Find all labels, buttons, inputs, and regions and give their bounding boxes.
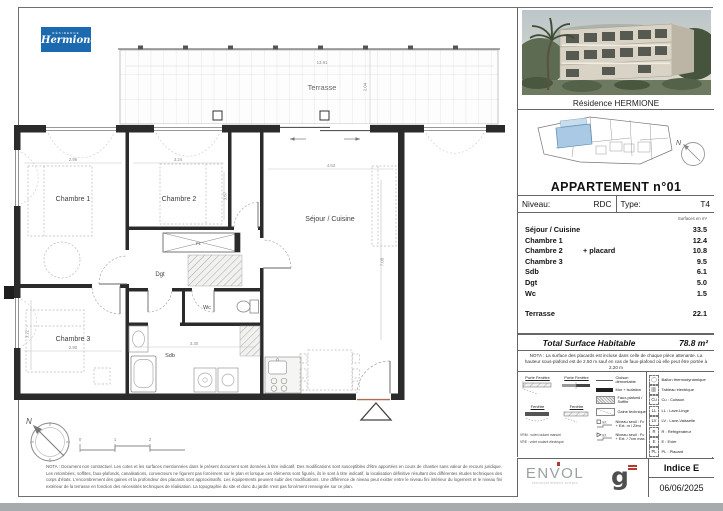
architect-logo-mark [628,465,637,467]
footer-logos: ENVOL renouvellement urbain g [517,458,648,497]
dim-ch3-w: 2.90 [69,345,78,350]
dim-sejour-w: 4.53 [327,163,336,168]
seuil-marker-icon: réf. [596,432,613,442]
niveau-label: Niveau: [522,199,550,209]
legend-linetypes: Cloison démontable Mur + isolation Faux-… [596,376,646,446]
north-label: N [26,417,32,426]
keyplan-section: N APPARTEMENT n°01 [518,112,714,196]
gaine-swatch [596,408,615,416]
footer-disclaimer: NOTA : Document non contractuel. Les cot… [46,464,502,491]
table-row: Chambre 2+ placard10.8 [525,246,707,257]
dim-ch2-d: 3.67 [223,191,228,200]
legend-vrm-note: VRM : volet roulant manuel [520,433,594,437]
envol-logo: ENVOL renouvellement urbain [518,459,592,497]
svg-text:réf.: réf. [602,434,607,438]
keyplan-north-icon: N [676,140,705,166]
architect-logo-letter: g [592,459,648,495]
unit-highlight [556,124,592,148]
table-row: Dgt5.0 [525,278,707,289]
page-edge-shadow [0,503,723,511]
table-row: Chambre 39.5 [525,257,707,268]
terrace-post [213,111,222,120]
north-arrow: N [26,417,70,462]
legend-gaine: Gaine technique [618,410,647,414]
mur-swatch [596,388,613,392]
label-wc: Wc [203,305,211,311]
placard [163,233,240,252]
residence-name: Hermione [41,35,91,46]
total-label: Total Surface Habitable [518,338,660,348]
surfaces-unit-note: Surfaces en m² [525,216,707,221]
architect-logo: g [592,459,648,497]
cuisson-icon: Cu [649,395,659,405]
legend-item: RR : Réfrigérateur [649,426,715,436]
label-dgt: Dgt [155,272,165,278]
legend-cloison: Cloison démontable [616,376,647,385]
soffit-hatch [188,255,242,286]
entrance-door [356,361,391,401]
evier-icon: E [649,437,659,447]
label-chambre2: Chambre 2 [162,196,197,203]
dim-sdb-w: 3.30 [190,341,199,346]
legend-faux-plafond: Faux-plafond / Soffite [618,396,647,405]
kitchen-fixtures [265,357,301,393]
label-chambre3: Chambre 3 [56,336,91,343]
table-row: Séjour / Cuisine33.5 [525,225,707,236]
revision-box: Indice E 06/06/2025 [648,458,714,497]
keyplan-north-label: N [676,140,682,147]
terrace-post [320,111,329,120]
dim-ch2-w: 3.24 [174,157,183,162]
type-value: T4 [700,199,710,209]
dim-sejour-d: 7.08 [380,257,385,266]
porte-fenetre-symbol [522,380,554,396]
placard-icon: PL [649,447,659,457]
dim-terrasse-w: 13.91 [317,60,328,65]
cloison-swatch [596,380,613,381]
fenetre-symbol [522,409,554,425]
level-type-row: Niveau: RDC Type: T4 [518,196,714,213]
scale-2: 2 [149,437,152,442]
legend-mur: Mur + isolation [616,388,647,392]
architect-logo-mark [628,468,637,470]
refrigerateur-icon: R [649,427,659,437]
legend-item: CuCu : Cuisson [649,395,715,405]
scale-bar: 0 1 2 [79,437,185,452]
label-pl: PL [196,241,202,246]
scale-0: 0 [79,437,82,442]
legend-item: Tableau électrique [649,385,715,395]
legend-item: EE : Evier [649,437,715,447]
bathroom-fixtures [129,300,259,392]
apartment-title: APPARTEMENT n°01 [518,180,714,194]
dim-ch3-d: 3.22 [25,329,30,338]
label-sdb: Sdb [165,353,175,359]
legend-item: Ballon thermodynamique [649,375,715,385]
lave-linge-icon: LL [649,406,659,416]
table-row: Wc1.5 [525,289,707,300]
legend-seuil1: Niveau seuil : Fc + Ext. m / Zéro [616,420,647,429]
legend-section: Porte Fenêtre Porte Fenêtre [518,372,714,461]
type-label: Type: [621,199,641,209]
plan-sheet: 13.91 2.96 3.24 4.53 2.90 3.30 2.04 3.67… [0,0,723,503]
legend-item: LLLL : Lave-Linge [649,406,715,416]
envol-logo-mark [557,462,560,466]
label-chambre1: Chambre 1 [56,196,91,203]
tableau-electrique-icon [649,385,659,395]
photo-caption: Résidence HERMIONE [518,98,714,108]
building-render-image [522,10,711,95]
seuil-marker-icon: réf. [596,419,613,429]
lave-vaisselle-icon: LV [649,416,659,426]
porte-fenetre-symbol [561,380,593,396]
table-row-terrasse: Terrasse22.1 [525,309,707,320]
svg-text:réf.: réf. [602,421,607,425]
legend-item: LVLV : Lave-Vaisselle [649,416,715,426]
compass-and-scale: N 0 1 2 [10,410,210,470]
surface-table: Surfaces en m² Séjour / Cuisine33.5 Cham… [518,213,714,334]
title-block: Résidence HERMIONE N APPARTEME [517,8,714,457]
entrance-triangle-marker [361,403,391,420]
legend-vre-note: VRE : volet roulant électrique [520,440,594,444]
panel-nota: NOTA : La surface des placards est inclu… [518,351,714,372]
label-terrasse: Terrasse [308,83,337,92]
revision-indice: Indice E [649,459,714,478]
total-unit: m² [698,338,708,348]
envol-name: ENVOL [518,466,592,481]
dim-ch1-w: 2.96 [69,157,78,162]
scale-1: 1 [114,437,117,442]
table-row: Sdb6.1 [525,267,707,278]
legend-windows: Porte Fenêtre Porte Fenêtre [520,375,594,444]
site-keyplan: N [520,112,713,176]
legend-equipment: Ballon thermodynamique Tableau électriqu… [646,372,715,461]
fenetre-symbol [561,409,593,425]
legend-seuil2: Niveau seuil : Fc + Ext. / 7cm max. [616,433,647,442]
niveau-value: RDC [594,199,612,209]
render-photo-section: Résidence HERMIONE [518,10,714,110]
faux-plafond-swatch [596,396,615,404]
label-sejour: Séjour / Cuisine [305,216,355,223]
total-surface-bar: Total Surface Habitable 78.8 m² [518,334,714,351]
walls [14,125,505,400]
hermione-logo: RÉSIDENCE Hermione [41,27,91,52]
ballon-icon [649,375,659,385]
legend-item: PLPL : Placard [649,447,715,457]
revision-date: 06/06/2025 [649,478,714,498]
section-marker [4,286,14,299]
duct-hatch [240,326,260,356]
table-row: Chambre 112.4 [525,236,707,247]
dim-terrasse-d: 2.04 [363,82,368,91]
total-value: 78.8 [679,338,695,348]
